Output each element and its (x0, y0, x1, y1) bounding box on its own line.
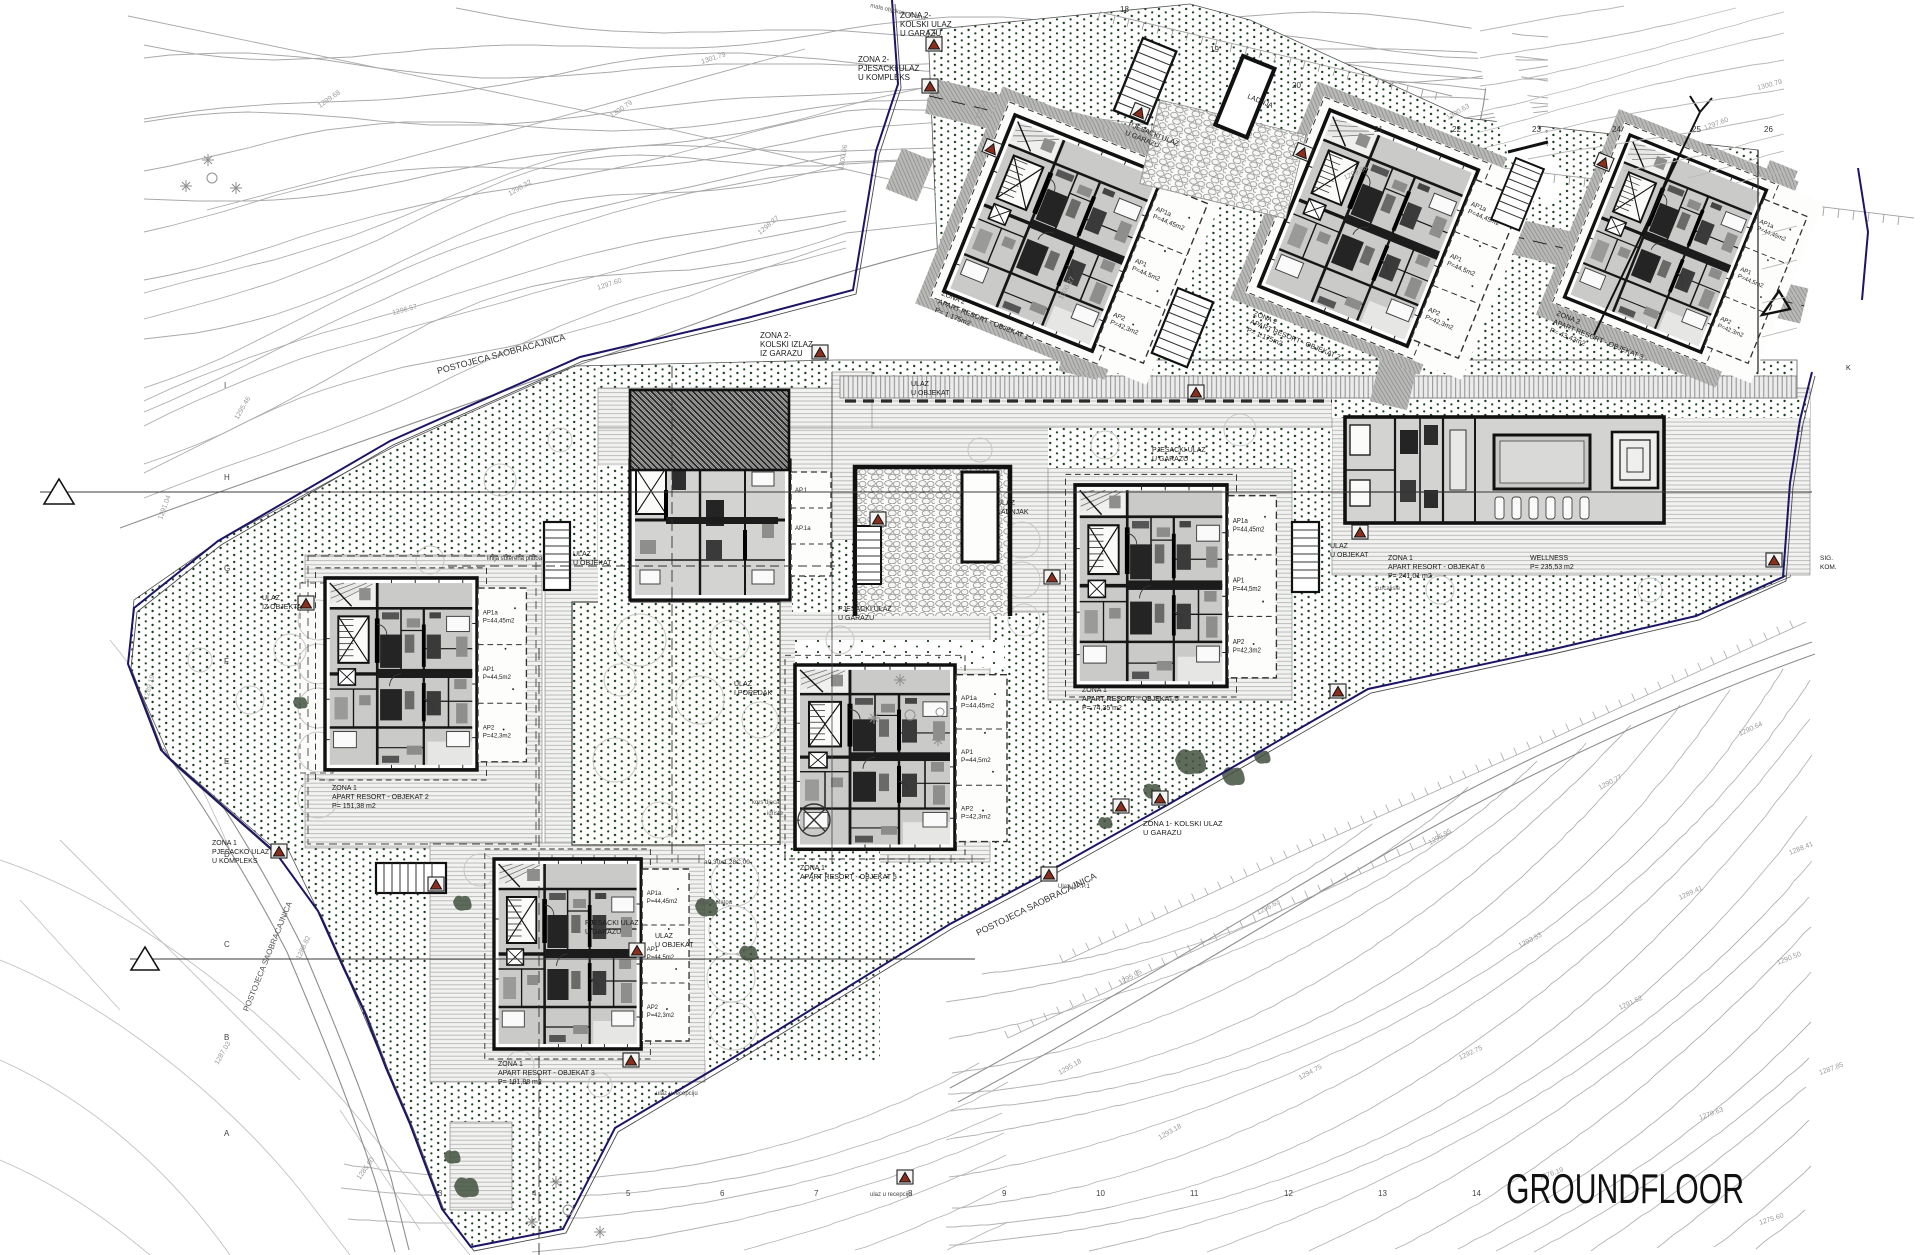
svg-text:U GARAZU: U GARAZU (585, 929, 621, 936)
svg-text:IZ GARAZU: IZ GARAZU (760, 349, 803, 358)
svg-text:18: 18 (1120, 5, 1129, 14)
svg-text:surcalisle: surcalisle (1375, 586, 1401, 592)
svg-text:ZONA 1: ZONA 1 (332, 785, 357, 792)
svg-text:a0,30x1,28C,00: a0,30x1,28C,00 (704, 859, 750, 866)
svg-text:E: E (224, 757, 229, 766)
svg-text:ULAZ: ULAZ (573, 551, 592, 558)
svg-text:LADNJAK: LADNJAK (997, 509, 1029, 516)
svg-text:PJESACKI ULAZ: PJESACKI ULAZ (838, 606, 892, 613)
svg-text:19: 19 (1210, 45, 1219, 54)
svg-text:ULAZ: ULAZ (997, 500, 1016, 507)
svg-text:P= 74,35 m2: P= 74,35 m2 (1082, 705, 1122, 712)
svg-text:AP.1a: AP.1a (795, 526, 811, 532)
svg-text:linija suterena platoa: linija suterena platoa (487, 556, 543, 562)
svg-text:ULAZ: ULAZ (911, 381, 930, 388)
svg-text:GROUNDFLOOR: GROUNDFLOOR (1506, 1165, 1744, 1212)
svg-text:G: G (224, 564, 230, 573)
svg-text:KOM.: KOM. (1820, 564, 1837, 571)
svg-text:KOLSKI IZLAZ: KOLSKI IZLAZ (760, 340, 813, 349)
svg-text:4: 4 (532, 1189, 537, 1198)
svg-text:B: B (224, 1033, 229, 1042)
svg-text:21: 21 (1374, 125, 1383, 134)
svg-text:P= 241,01 m2: P= 241,01 m2 (1388, 573, 1432, 580)
svg-text:13: 13 (1378, 1189, 1387, 1198)
svg-text:H: H (224, 473, 230, 482)
svg-text:20: 20 (1292, 81, 1301, 90)
svg-text:SIG.: SIG. (1820, 555, 1833, 562)
svg-text:AP.1: AP.1 (795, 488, 808, 494)
svg-text:26: 26 (1764, 125, 1773, 134)
svg-text:U GARAZU: U GARAZU (1152, 456, 1188, 463)
svg-text:U GARAZU: U GARAZU (838, 615, 874, 622)
svg-text:igriste: igriste (767, 811, 784, 817)
svg-text:U KOMPLEKS: U KOMPLEKS (858, 73, 910, 82)
svg-text:P= 151,38 m2: P= 151,38 m2 (332, 803, 376, 810)
svg-text:P= 191,88 m2: P= 191,88 m2 (498, 1079, 542, 1086)
svg-text:11: 11 (1190, 1189, 1199, 1198)
svg-text:ZONA 1: ZONA 1 (1388, 555, 1413, 562)
svg-text:APART RESORT - OBJEKAT 5: APART RESORT - OBJEKAT 5 (1082, 696, 1179, 703)
svg-text:ULAZ: ULAZ (655, 933, 674, 940)
svg-text:P= 235,53 m2: P= 235,53 m2 (1530, 564, 1574, 571)
svg-text:5: 5 (626, 1189, 631, 1198)
svg-text:ulaz u recepciju: ulaz u recepciju (870, 1192, 912, 1198)
svg-text:9: 9 (1002, 1189, 1007, 1198)
svg-text:22: 22 (1452, 125, 1461, 134)
svg-text:23: 23 (1532, 125, 1541, 134)
svg-text:8: 8 (908, 1189, 913, 1198)
svg-text:ULAZ: ULAZ (734, 681, 753, 688)
svg-text:K: K (1846, 365, 1851, 372)
svg-text:U GARAZU: U GARAZU (900, 29, 942, 38)
svg-text:C: C (224, 940, 230, 949)
svg-text:ZONA 1: ZONA 1 (800, 865, 825, 872)
svg-text:U KOMPLEKS: U KOMPLEKS (212, 858, 258, 865)
svg-text:PJESACKI ULAZ: PJESACKI ULAZ (858, 64, 919, 73)
svg-text:24: 24 (1612, 125, 1621, 134)
svg-text:ZONA 1: ZONA 1 (1082, 687, 1107, 694)
svg-text:PJESACKI ULAZ: PJESACKI ULAZ (1152, 447, 1206, 454)
svg-text:ZONA 1: ZONA 1 (212, 840, 237, 847)
svg-text:IZ OBJEKTA: IZ OBJEKTA (262, 604, 302, 611)
svg-text:F: F (224, 657, 229, 666)
svg-text:D: D (224, 850, 230, 859)
svg-text:I: I (224, 381, 226, 390)
svg-text:ZONA 1: ZONA 1 (498, 1061, 523, 1068)
svg-text:14: 14 (1472, 1189, 1481, 1198)
svg-text:APART RESORT - OBJEKAT 2: APART RESORT - OBJEKAT 2 (332, 794, 429, 801)
svg-text:WELLNESS: WELLNESS (1530, 555, 1568, 562)
svg-text:ulaz u recepciju: ulaz u recepciju (656, 1091, 698, 1097)
svg-text:I POREDAK: I POREDAK (734, 690, 772, 697)
svg-text:ZONA 2-: ZONA 2- (858, 55, 889, 64)
svg-text:PJESACKO ULAZ: PJESACKO ULAZ (212, 849, 270, 856)
svg-text:ULAZ: ULAZ (262, 595, 281, 602)
svg-text:3: 3 (438, 1189, 443, 1198)
svg-text:A: A (224, 1129, 230, 1138)
svg-text:7: 7 (814, 1189, 819, 1198)
svg-text:ULAZ: ULAZ (1330, 543, 1349, 550)
svg-text:25: 25 (1692, 125, 1701, 134)
svg-text:U OBJEKAT: U OBJEKAT (1330, 552, 1369, 559)
svg-text:U OBJEKAT: U OBJEKAT (655, 942, 694, 949)
svg-text:6: 6 (720, 1189, 725, 1198)
svg-text:linija 1 platoa: linija 1 platoa (697, 900, 733, 906)
svg-text:APART RESORT - OBJEKAT 6: APART RESORT - OBJEKAT 6 (1388, 564, 1485, 571)
svg-text:kqrs djeca: kqrs djeca (752, 800, 780, 806)
svg-text:KOLSKI ULAZ: KOLSKI ULAZ (900, 20, 952, 29)
svg-text:PJESACKI ULAZ: PJESACKI ULAZ (585, 920, 639, 927)
svg-text:LI: LI (1797, 427, 1803, 434)
svg-text:APART RESORT - OBJEKAT 5: APART RESORT - OBJEKAT 5 (800, 874, 897, 881)
svg-text:10: 10 (1096, 1189, 1105, 1198)
svg-text:APART RESORT - OBJEKAT 3: APART RESORT - OBJEKAT 3 (498, 1070, 595, 1077)
svg-text:U OBJEKAT: U OBJEKAT (573, 560, 612, 567)
svg-text:ZONA 1- KOLSKI ULAZ: ZONA 1- KOLSKI ULAZ (1143, 819, 1223, 828)
svg-text:U OBJEKAT: U OBJEKAT (911, 390, 950, 397)
svg-text:U GARAZU: U GARAZU (1143, 828, 1182, 837)
svg-text:12: 12 (1284, 1189, 1293, 1198)
svg-text:ZONA 2-: ZONA 2- (760, 331, 791, 340)
